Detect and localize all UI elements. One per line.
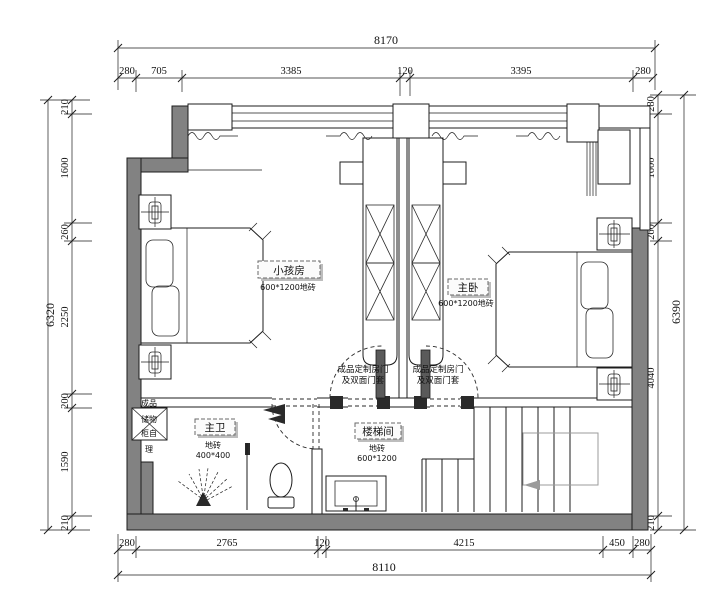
bathroom-floor-l1: 地砖 [205,440,221,450]
wardrobe-kids [340,138,397,365]
curtain-squiggle [188,133,238,140]
dim-left-seg-3: 2250 [60,307,71,328]
wall-post-left [188,104,232,130]
door-note-right-l2: 及双面门套 [417,375,460,386]
bathroom-name: 主卫 [205,422,226,434]
door-frame-mark [268,414,285,424]
wardrobe-side-panel [340,162,363,184]
shower-screen [245,443,250,510]
dim-top-seg-3: 120 [397,66,413,77]
nightstand-master-top [597,218,632,250]
dim-top-seg-5: 280 [635,66,651,77]
label-master-room: 主卧 600*1200地砖 [438,279,494,308]
stairwell-name: 楼梯间 [362,425,394,438]
stairs [422,407,598,512]
label-kids-room: 小孩房 600*1200地砖 [258,261,323,292]
stairwell-floor-l1: 地砖 [369,443,385,453]
cabinet-note-line1: 成品 [141,398,157,408]
kids-room-floor: 600*1200地砖 [260,282,316,292]
wall-hallway [141,396,632,409]
dim-bottom-seg-2: 120 [314,538,330,549]
bed-kids [141,228,263,343]
dim-left-total: 6320 [43,303,57,327]
dimension-left: 6320 210 1600 260 2250 200 1590 210 [40,96,92,534]
floor-plan-canvas: 8170 280 705 3385 120 3395 280 6320 210 … [0,0,720,612]
dim-top-seg-4: 3395 [511,66,532,77]
cabinet-note-line3: 柜自 [141,428,157,438]
cabinet-note-line2: 储物 [141,414,157,424]
master-room-name: 主卧 [458,281,479,294]
stair-landing-guide [523,433,598,485]
door-jamb-block [330,396,343,409]
dim-left-seg-1: 1600 [60,158,71,179]
cabinet-note-line4: 理 [145,445,153,454]
dim-top-seg-2: 3385 [281,66,302,77]
shower-head-symbol [178,468,233,506]
master-room-floor: 600*1200地砖 [438,298,494,308]
dim-bottom-seg-4: 450 [609,538,625,549]
door-note-left-l1: 成品定制房门 [337,364,388,375]
dim-top-total: 8170 [374,33,398,47]
dimension-top: 8170 280 705 3385 120 3395 280 [114,33,659,96]
dim-top-seg-0: 280 [119,66,135,77]
nightstand-kids-top [139,195,171,229]
dim-right-total: 6390 [669,300,683,324]
vanity-sink [326,476,386,511]
dim-left-seg-4: 200 [60,393,71,409]
bed-master [496,252,632,367]
dimension-right: 280 1600 260 4040 210 6390 [646,91,696,534]
stairwell-floor-l2: 600*1200 [357,454,397,463]
wall-post-right [567,104,599,142]
dim-bottom-seg-0: 280 [119,538,135,549]
wall-right [632,228,648,530]
wardrobe-master [409,138,466,365]
wall-center-partition [399,138,407,399]
door-bathroom [263,404,319,449]
floor-plan-drawing: 8170 280 705 3385 120 3395 280 6320 210 … [0,0,720,612]
master-room-furniture [488,130,632,400]
nightstand-master-bottom [597,368,632,400]
curtain-squiggle [516,133,560,140]
nightstand-kids-bottom [139,345,171,379]
dim-top-seg-1: 705 [151,66,167,77]
kids-room-name: 小孩房 [273,264,305,277]
dim-bottom-total: 8110 [372,560,396,574]
toilet [268,463,294,508]
label-stairwell: 楼梯间 地砖 600*1200 [355,423,404,463]
door-jamb-block [461,396,474,409]
dim-left-seg-0: 210 [60,99,71,115]
kids-room-furniture [139,195,271,379]
wardrobe-side-panel [443,162,466,184]
window-left [232,106,393,128]
dim-left-seg-5: 1590 [60,452,71,473]
stair-direction-arrow [524,480,540,490]
dim-bottom-seg-5: 280 [634,538,650,549]
label-bathroom: 主卫 地砖 400*400 [195,419,238,460]
wall-top-right [599,106,650,128]
dim-bottom-seg-1: 2765 [217,538,238,549]
window-right [429,106,567,128]
wall-post-center [393,104,429,138]
dim-bottom-seg-3: 4215 [454,538,475,549]
wall-bath-partition [312,449,322,514]
door-note-right-l1: 成品定制房门 [412,364,463,375]
wall-bottom [127,514,648,530]
dim-left-seg-6: 210 [60,515,71,531]
door-note-left-l2: 及双面门套 [342,375,385,386]
dim-left-seg-2: 260 [60,224,71,240]
bathroom-floor-l2: 400*400 [196,451,231,460]
dimension-bottom: 280 2765 120 4215 450 280 8110 [114,534,655,582]
